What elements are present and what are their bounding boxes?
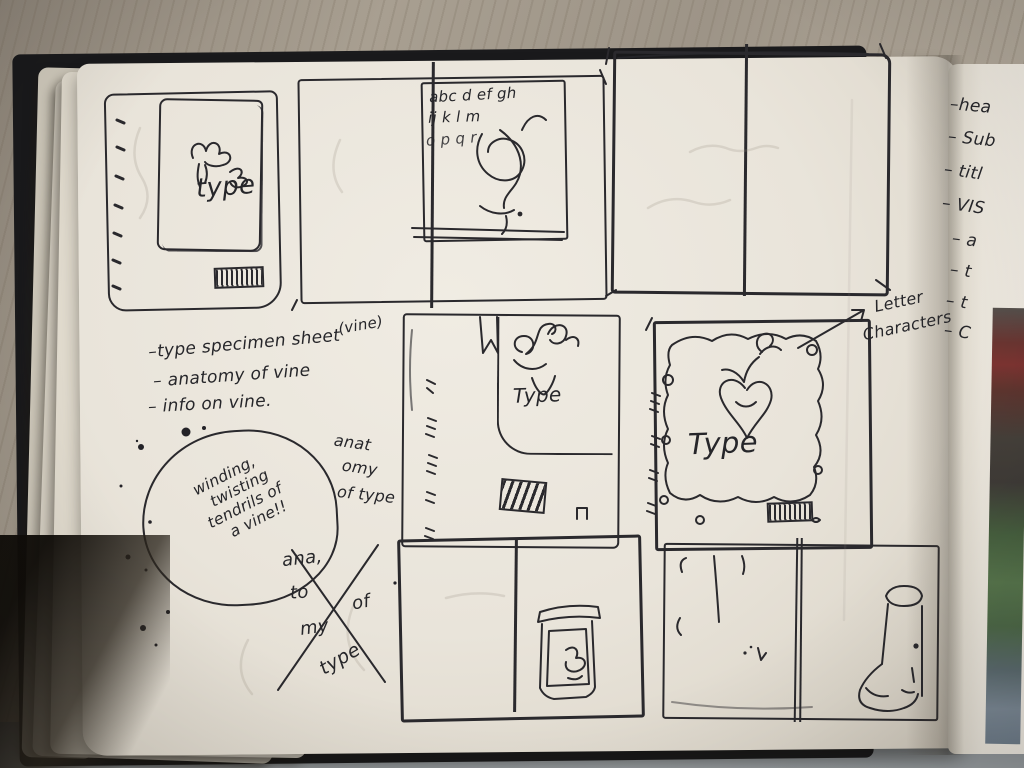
cover-border-title: Type <box>687 425 758 461</box>
crossed-word: ana, <box>281 546 323 571</box>
dash: – <box>945 291 957 312</box>
sketch-spread-jar <box>397 534 645 722</box>
right-list-item: –hea <box>949 94 992 118</box>
pasted-photo-strip <box>985 308 1024 745</box>
crossed-word: of <box>350 591 371 615</box>
dash: – <box>152 371 162 392</box>
dash: – <box>951 229 962 250</box>
right-list-text: Sub <box>962 128 997 151</box>
crossed-word: my <box>299 615 330 640</box>
sketchbook-photo: type abc d ef gh ij k l m o p q r (vine)… <box>0 0 1024 768</box>
right-list-text: VIS <box>955 195 986 219</box>
dash: – <box>941 193 953 214</box>
dash: – <box>949 260 960 281</box>
barcode-doodle <box>499 478 548 514</box>
dark-corner-shadow <box>0 535 170 768</box>
right-list-item: – t <box>949 260 973 282</box>
cover-vine-title: Type <box>513 382 562 408</box>
dash: – <box>943 159 955 180</box>
dash: – <box>947 127 958 148</box>
dash: – <box>943 320 955 341</box>
cover-small-title: type <box>195 170 256 204</box>
sketch-cover-vine-border <box>653 319 873 551</box>
right-list-item: – C <box>943 320 972 344</box>
alphabet-line: o p q r <box>425 128 477 149</box>
right-list-text: titl <box>957 161 984 184</box>
sketch-spread-empty <box>611 51 892 297</box>
right-list-item: – a <box>951 229 978 252</box>
right-list-text: hea <box>958 95 992 118</box>
crossed-word: to <box>289 581 309 603</box>
alphabet-line: ij k l m <box>428 107 481 127</box>
barcode-doodle <box>767 501 814 523</box>
dash: – <box>148 397 158 417</box>
barcode-doodle <box>214 266 265 289</box>
right-list-item: – t <box>945 291 969 314</box>
